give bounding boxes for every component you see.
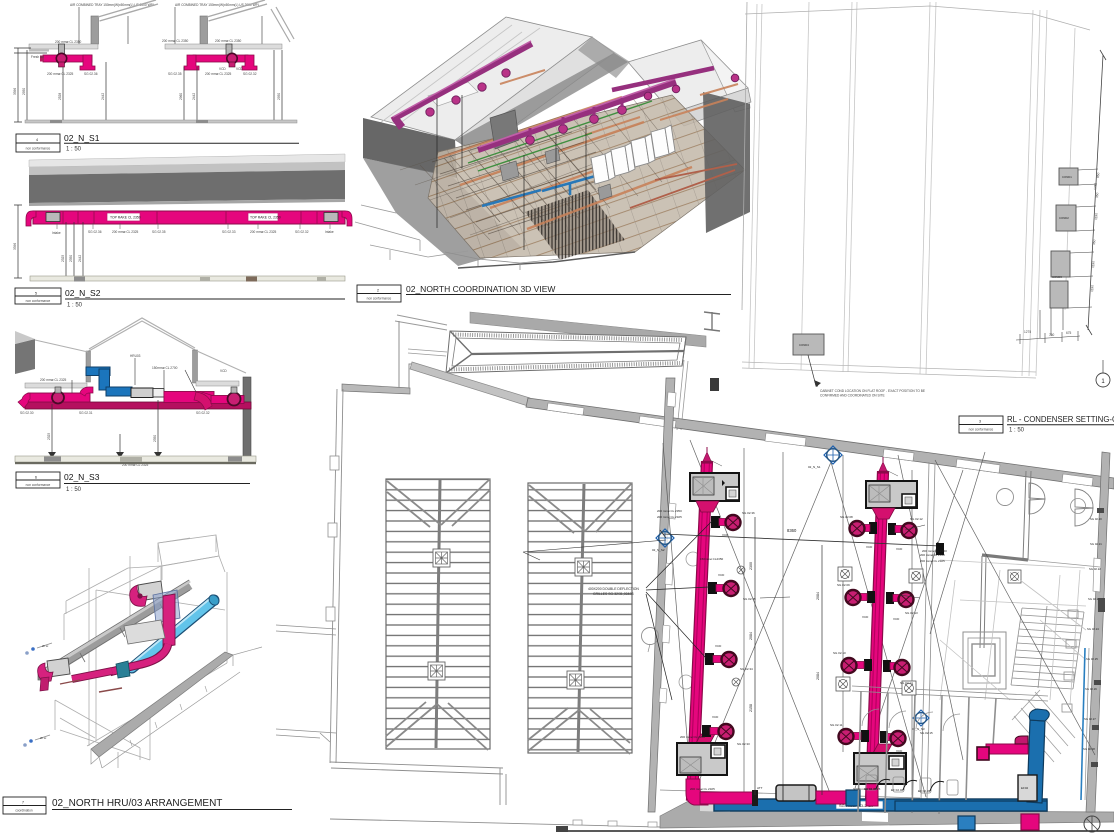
- svg-text:2960: 2960: [179, 93, 183, 100]
- svg-text:Intake: Intake: [325, 230, 334, 234]
- svg-text:2950: 2950: [277, 93, 281, 100]
- svg-text:02_N_S1: 02_N_S1: [64, 133, 100, 143]
- svg-text:02_NORTH COORDINATION 3D VIEW: 02_NORTH COORDINATION 3D VIEW: [406, 284, 555, 294]
- svg-text:2084: 2084: [816, 592, 820, 600]
- svg-text:2F xx: 2F xx: [40, 736, 47, 740]
- svg-text:SG 02.33: SG 02.33: [737, 742, 750, 746]
- svg-text:SG 02.36: SG 02.36: [742, 511, 755, 515]
- svg-text:2084: 2084: [749, 632, 753, 640]
- svg-text:2442: 2442: [192, 93, 196, 100]
- svg-text:200 mmø CL 2350: 200 mmø CL 2350: [680, 735, 705, 739]
- svg-text:1481: 1481: [1093, 182, 1098, 190]
- svg-text:2950: 2950: [22, 88, 26, 95]
- svg-text:200 mmø CL 2350: 200 mmø CL 2350: [162, 39, 189, 43]
- svg-text:SG 02.25: SG 02.25: [1086, 657, 1098, 661]
- svg-text:TOP RAKE CL 2350: TOP RAKE CL 2350: [110, 216, 141, 220]
- svg-text:1190: 1190: [1091, 261, 1095, 268]
- svg-text:150mmø CL2350: 150mmø CL2350: [700, 557, 724, 561]
- svg-text:non conformance: non conformance: [969, 428, 994, 432]
- svg-text:1190: 1190: [1090, 285, 1094, 292]
- svg-text:02_N_S1: 02_N_S1: [808, 465, 821, 469]
- svg-text:SG 02.36: SG 02.36: [84, 72, 98, 76]
- svg-text:760: 760: [1049, 333, 1055, 337]
- svg-text:200 mmø CL 2350: 200 mmø CL 2350: [215, 39, 242, 43]
- svg-text:8360: 8360: [787, 528, 797, 533]
- svg-text:02_N_S3: 02_N_S3: [64, 472, 100, 482]
- svg-text:200 mmø CL 2325: 200 mmø CL 2325: [112, 230, 139, 234]
- svg-text:SG 02.28: SG 02.28: [1083, 747, 1095, 751]
- svg-text:850: 850: [1096, 172, 1100, 178]
- svg-text:02_NORTH HRU/03 ARRANGEMENT: 02_NORTH HRU/03 ARRANGEMENT: [52, 798, 222, 809]
- svg-text:1 : 50: 1 : 50: [1009, 428, 1025, 434]
- svg-text:VCD: VCD: [712, 715, 719, 719]
- svg-text:1275: 1275: [1024, 330, 1031, 334]
- svg-text:EF 02.02: EF 02.02: [891, 788, 904, 792]
- svg-text:SG 02.27: SG 02.27: [1084, 717, 1096, 721]
- svg-text:675: 675: [1066, 331, 1072, 335]
- svg-text:SG 02.35: SG 02.35: [743, 597, 756, 601]
- svg-text:200 mmø CL 2325: 200 mmø CL 2325: [690, 787, 715, 791]
- svg-text:VCD: VCD: [866, 545, 873, 549]
- svg-text:VCD: VCD: [896, 547, 903, 551]
- svg-text:1190: 1190: [1094, 213, 1098, 220]
- svg-text:VCD: VCD: [236, 67, 243, 71]
- svg-text:HRU03: HRU03: [130, 354, 141, 358]
- svg-text:1 : 50: 1 : 50: [66, 487, 82, 493]
- svg-text:3396: 3396: [13, 243, 17, 250]
- svg-text:150mmø CL 2700: 150mmø CL 2700: [152, 366, 178, 370]
- svg-text:SG 02.12: SG 02.12: [910, 517, 923, 521]
- svg-text:SG 02.35: SG 02.35: [152, 230, 166, 234]
- svg-text:SG 02.36: SG 02.36: [88, 230, 102, 234]
- svg-text:COND2: COND2: [1059, 216, 1069, 220]
- svg-text:non conformance: non conformance: [26, 483, 51, 487]
- svg-text:1 : 50: 1 : 50: [66, 147, 82, 153]
- svg-text:2F xx: 2F xx: [42, 644, 49, 648]
- svg-text:EF 02.03: EF 02.03: [918, 789, 931, 793]
- svg-text:1 : 50: 1 : 50: [67, 303, 83, 309]
- svg-text:2300: 2300: [749, 562, 753, 570]
- svg-text:Fresh Air: Fresh Air: [31, 55, 45, 59]
- svg-text:SG 02.22: SG 02.22: [1089, 567, 1101, 571]
- svg-text:200 mmø CL 2350: 200 mmø CL 2350: [657, 509, 682, 513]
- svg-text:VCD: VCD: [893, 617, 900, 621]
- svg-text:350: 350: [1092, 239, 1096, 245]
- svg-text:SG 02.30: SG 02.30: [20, 411, 34, 415]
- svg-text:COND1: COND1: [1062, 175, 1072, 179]
- svg-text:VCD: VCD: [718, 573, 725, 577]
- svg-text:2442: 2442: [101, 93, 105, 100]
- svg-text:SG 02.32: SG 02.32: [295, 230, 309, 234]
- svg-text:TOP RAKE CL 2350: TOP RAKE CL 2350: [250, 216, 281, 220]
- svg-text:COND3: COND3: [1052, 275, 1062, 279]
- svg-text:200 mmø CL 2325: 200 mmø CL 2325: [40, 378, 67, 382]
- svg-text:EF02: EF02: [1021, 786, 1029, 790]
- svg-text:2325: 2325: [61, 255, 65, 262]
- svg-text:SG 02.26: SG 02.26: [1085, 687, 1097, 691]
- svg-text:VCD: VCD: [715, 644, 722, 648]
- svg-text:VCD: VCD: [219, 67, 226, 71]
- svg-text:200 mmø CL 2325: 200 mmø CL 2325: [920, 559, 945, 563]
- svg-text:1 000 mmø CL 2325: 1 000 mmø CL 2325: [853, 787, 881, 791]
- svg-text:SG 02.13: SG 02.13: [905, 611, 918, 615]
- svg-text:Intake: Intake: [52, 231, 61, 235]
- svg-text:SG 02.31: SG 02.31: [79, 411, 93, 415]
- svg-text:2084: 2084: [816, 672, 820, 680]
- svg-text:2158: 2158: [749, 704, 753, 712]
- svg-text:RL - CONDENSER SETTING-OUT: RL - CONDENSER SETTING-OUT: [1007, 415, 1114, 424]
- svg-text:2442: 2442: [78, 255, 82, 262]
- svg-text:GRILLES SG-32/31,02&03: GRILLES SG-32/31,02&03: [593, 592, 634, 596]
- svg-text:SG 02.32: SG 02.32: [243, 72, 257, 76]
- svg-text:COND4: COND4: [799, 343, 809, 347]
- svg-text:non conformance: non conformance: [26, 147, 51, 151]
- svg-text:200 mmø CL 2350: 200 mmø CL 2350: [920, 553, 945, 557]
- svg-text:SG 02.14: SG 02.14: [900, 681, 913, 685]
- svg-text:200 mmø CL 2325: 200 mmø CL 2325: [205, 72, 232, 76]
- svg-text:CABINET COND LOCATION ON FLAT: CABINET COND LOCATION ON FLAT ROOF - EXA…: [820, 389, 925, 393]
- svg-text:2528: 2528: [58, 93, 62, 100]
- svg-text:SG 02.10: SG 02.10: [833, 651, 846, 655]
- svg-text:SG 02.32: SG 02.32: [196, 411, 210, 415]
- svg-text:VCD: VCD: [862, 615, 869, 619]
- svg-text:200 mmø CL 2325: 200 mmø CL 2325: [657, 515, 682, 519]
- svg-text:200 mmø CL 2325: 200 mmø CL 2325: [250, 230, 277, 234]
- svg-text:2350: 2350: [153, 435, 157, 442]
- svg-text:200 mmø CL 2350: 200 mmø CL 2350: [55, 40, 82, 44]
- svg-text:VCD: VCD: [896, 749, 903, 753]
- svg-text:non conformance: non conformance: [367, 297, 392, 301]
- svg-text:SG 02.34: SG 02.34: [740, 667, 753, 671]
- svg-text:SG 02.20: SG 02.20: [1090, 517, 1102, 521]
- svg-text:VCD: VCD: [722, 533, 729, 537]
- svg-text:SG 02.33: SG 02.33: [222, 230, 236, 234]
- svg-text:200 mmø CL 2325: 200 mmø CL 2325: [47, 72, 74, 76]
- svg-text:non conformance: non conformance: [26, 299, 51, 303]
- svg-text:350: 350: [1095, 192, 1099, 198]
- svg-text:2325: 2325: [47, 433, 51, 440]
- svg-text:SG 02.15: SG 02.15: [920, 731, 933, 735]
- svg-text:SG 02.35: SG 02.35: [168, 72, 182, 76]
- svg-text:SG 02.11: SG 02.11: [830, 723, 843, 727]
- svg-text:VCD: VCD: [220, 369, 227, 373]
- svg-text:2350: 2350: [69, 255, 73, 262]
- svg-text:SG 02.08: SG 02.08: [840, 515, 853, 519]
- svg-text:02_N_S2: 02_N_S2: [65, 288, 101, 298]
- svg-text:3396: 3396: [13, 88, 17, 95]
- svg-text:SG 02.21: SG 02.21: [1090, 542, 1102, 546]
- svg-text:ATT: ATT: [757, 786, 763, 790]
- svg-text:400X200 DOUBLE DEFLECTION: 400X200 DOUBLE DEFLECTION: [588, 587, 639, 591]
- svg-text:SG 02.24: SG 02.24: [1087, 627, 1099, 631]
- svg-text:CONFIRMED AND COORDINATED ON S: CONFIRMED AND COORDINATED ON SITE: [820, 394, 885, 398]
- svg-text:coordination: coordination: [15, 809, 33, 813]
- svg-text:02_N_S2: 02_N_S2: [652, 548, 665, 552]
- svg-text:SG 02.09: SG 02.09: [837, 583, 850, 587]
